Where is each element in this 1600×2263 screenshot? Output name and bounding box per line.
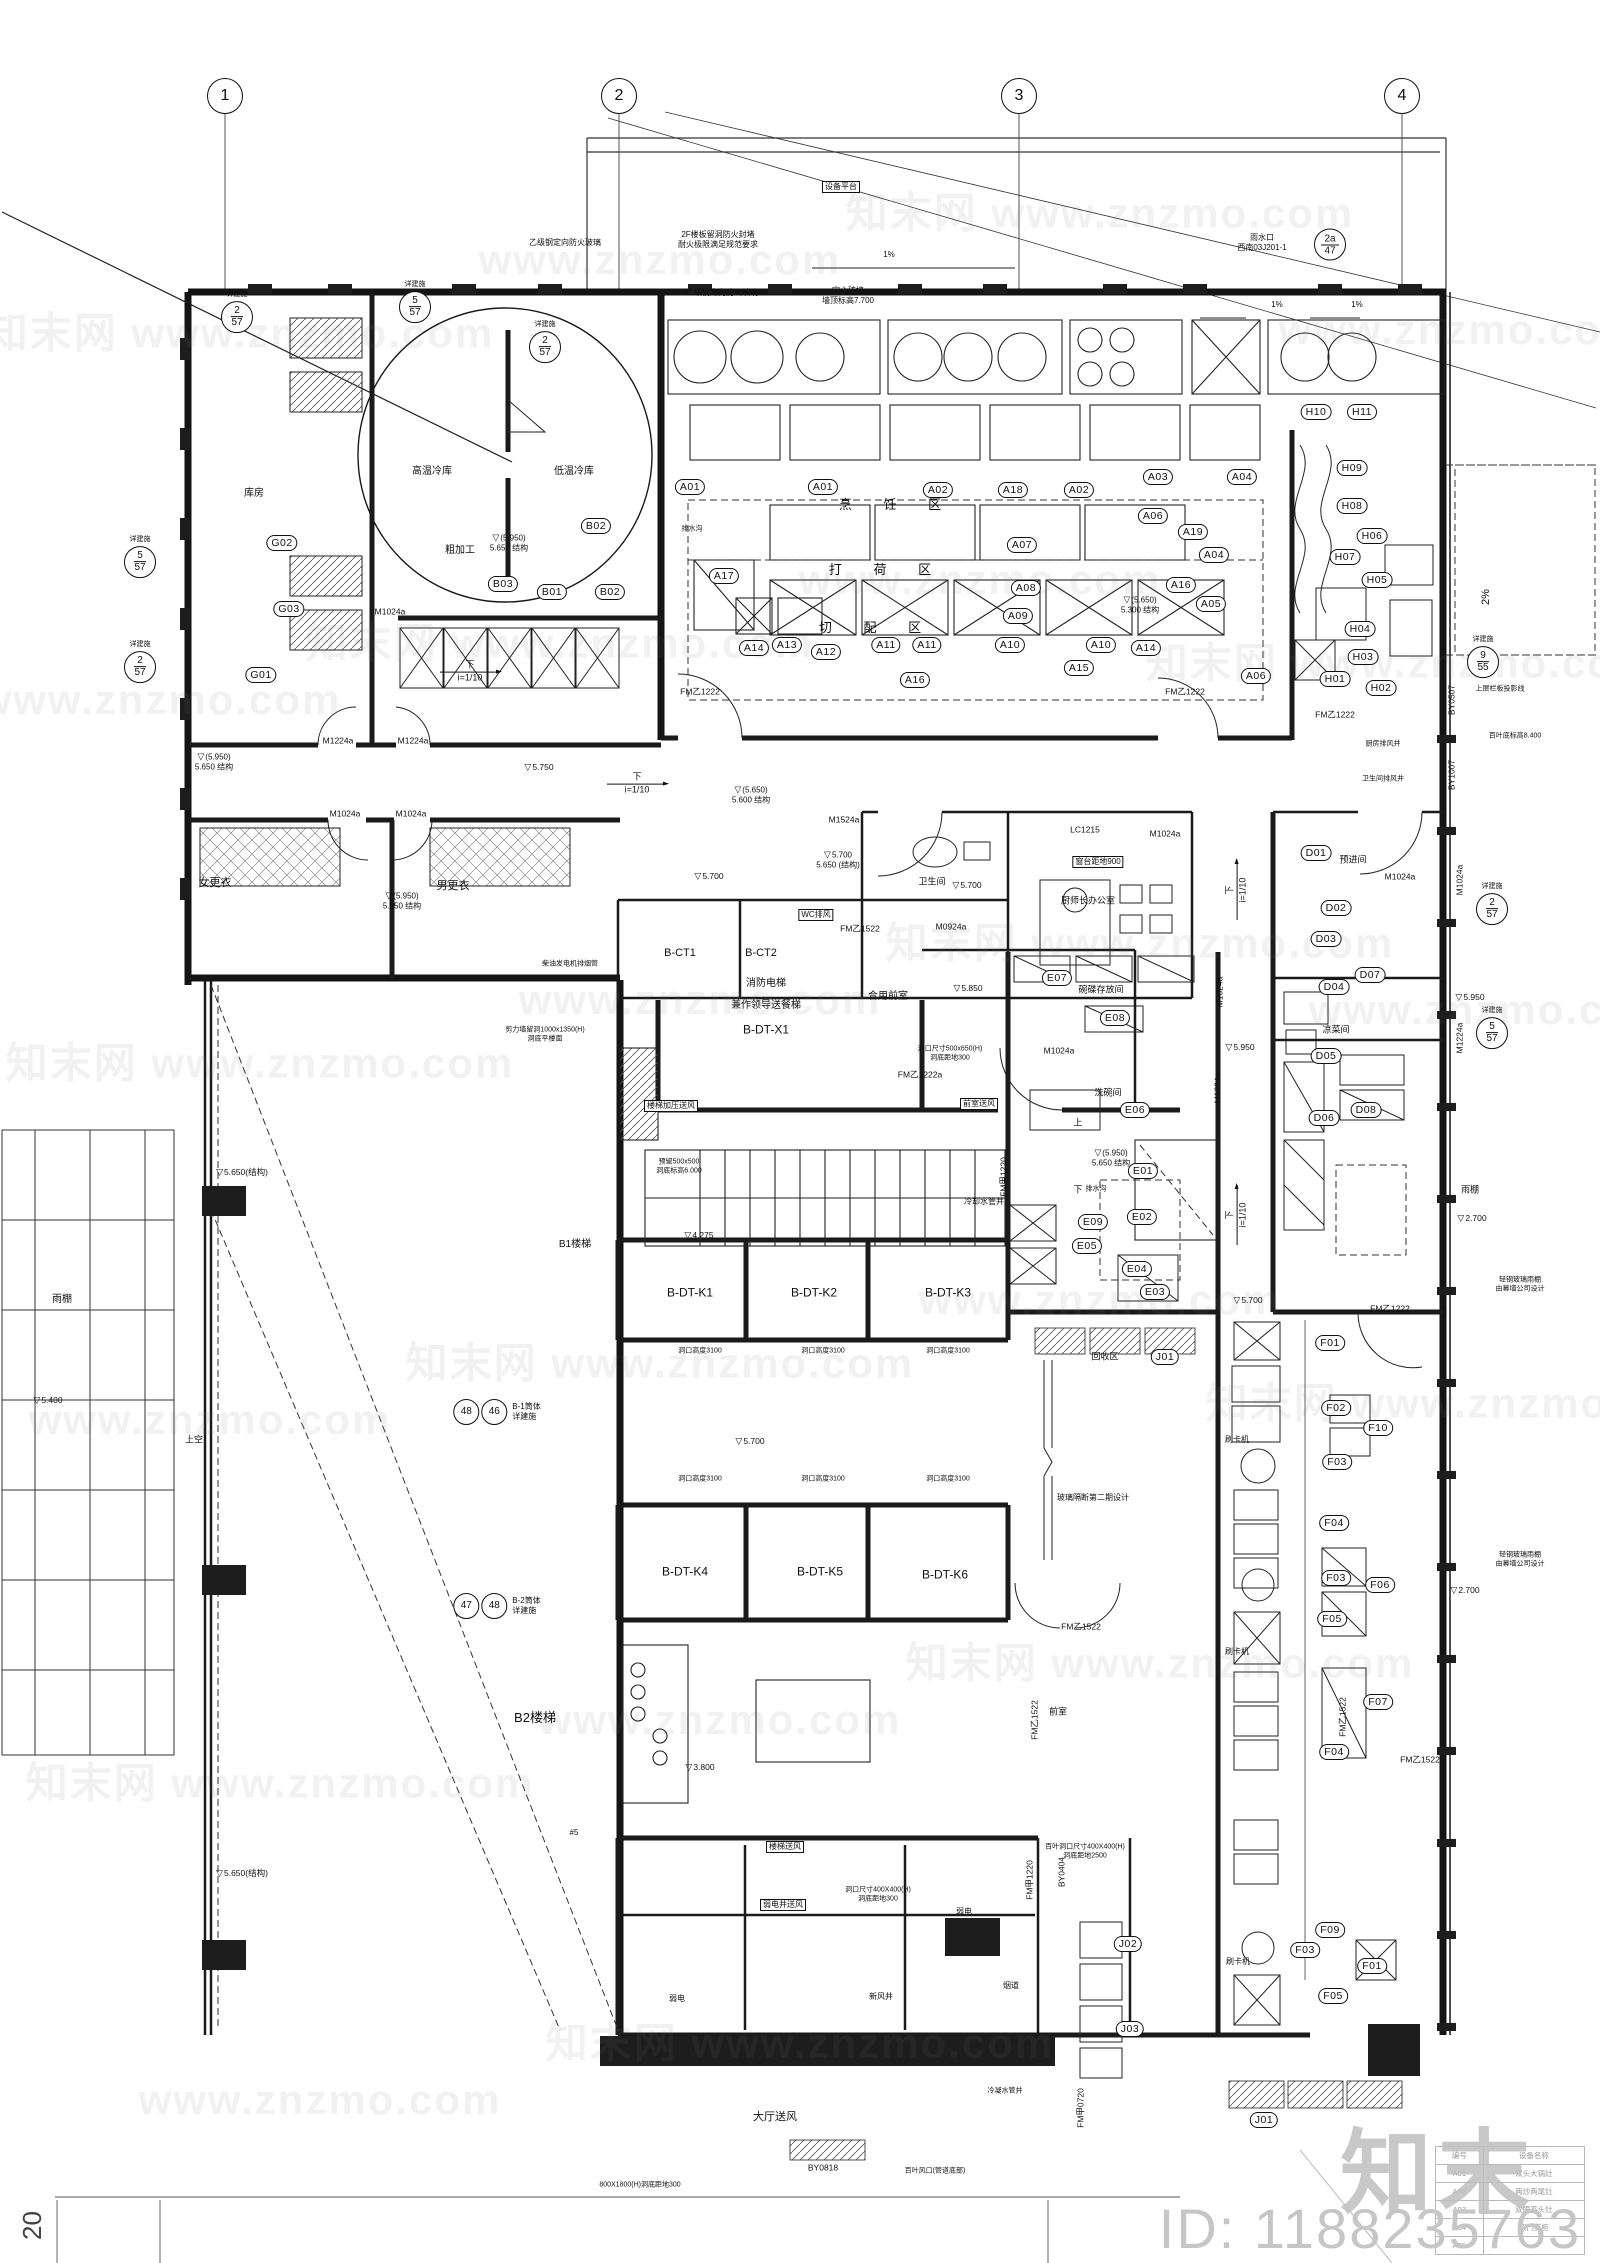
boxed-note: 弱电井送风 <box>760 1899 806 1911</box>
equipment-tag: F02 <box>1321 1400 1351 1416</box>
equipment-tag: A09 <box>1003 608 1033 624</box>
room-label: 女更衣 <box>199 877 232 891</box>
grid-axis-bubble: 1 <box>207 78 243 114</box>
ramp-slope-label: 下 i=1/10 <box>1226 860 1249 920</box>
room-label: 厨师长办公室 <box>1061 895 1115 906</box>
equipment-tag: H01 <box>1320 671 1351 687</box>
equipment-tag: F10 <box>1363 1420 1393 1436</box>
equipment-tag: E02 <box>1127 1209 1157 1225</box>
detail-ref-bubble: 详建施 257 <box>221 291 253 333</box>
annotation-note: 洞口尺寸500x650(H) 洞底距地300 <box>918 1045 983 1063</box>
room-label: B-CT2 <box>745 947 777 961</box>
door-code: BY0507 <box>1447 685 1458 715</box>
annotation-note: 预留500x500 洞底标高6.000 <box>656 1158 702 1176</box>
equipment-tag: B03 <box>488 576 518 592</box>
room-label: B-DT-X1 <box>743 1023 789 1038</box>
room-label: 烟道 <box>1003 1981 1019 1991</box>
room-label: 冷凝水管井 <box>988 2088 1023 2097</box>
door-code: FM乙1222 <box>1370 1304 1410 1315</box>
detail-ref-bubble: 详建施 955 <box>1467 636 1499 678</box>
level-mark: ▽5.700 <box>1233 1284 1262 1306</box>
equipment-tag: H05 <box>1362 572 1393 588</box>
level-mark: ▽5.950 <box>1225 1031 1254 1053</box>
grid-axis-bubble: 2 <box>601 78 637 114</box>
equipment-tag: E04 <box>1122 1261 1152 1277</box>
level-triangle-icon: ▽ <box>735 1436 742 1446</box>
boxed-note: 窗台距地900 <box>1072 856 1123 868</box>
boxed-note: 前室送风 <box>960 1098 998 1110</box>
level-mark: ▽5.950 <box>1455 981 1484 1003</box>
room-label: B-DT-K2 <box>791 1286 837 1301</box>
equipment-tag: G03 <box>273 601 304 617</box>
annotation-note: 1% <box>1271 300 1283 310</box>
grid-axis-bubble: 3 <box>1001 78 1037 114</box>
room-label: 大厅送风 <box>753 2111 797 2125</box>
zone-label: 切 配 区 <box>805 620 935 636</box>
annotation-note: 上层栏板投影线 <box>1476 686 1525 695</box>
equipment-tag: A03 <box>1143 469 1173 485</box>
boxed-note: 楼梯送风 <box>766 1841 804 1853</box>
door-code: LC1215 <box>1070 825 1100 836</box>
equipment-tag: A02 <box>1064 482 1094 498</box>
annotation-note: 洞口高度3100 <box>926 1348 970 1357</box>
equipment-tag: A14 <box>1131 640 1161 656</box>
equipment-tag: D03 <box>1311 931 1342 947</box>
detail-ref-bubble: 详建施 257 <box>124 641 156 683</box>
room-label: 兼作领导送餐梯 <box>731 1000 801 1013</box>
room-label: B-DT-K5 <box>797 1565 843 1580</box>
room-label: B-DT-K6 <box>922 1568 968 1583</box>
door-code: M1024a <box>396 809 427 820</box>
equipment-tag: H06 <box>1357 528 1388 544</box>
grid-axis-bubble: 4 <box>1384 78 1420 114</box>
equipment-tag: A07 <box>1007 537 1037 553</box>
ramp-slope-label: 下 i=1/10 <box>607 773 667 796</box>
ramp-arrow-icon <box>1237 1185 1238 1245</box>
annotation-note: 2F楼板留洞防火封堵 耐火极限满足规范要求 <box>678 230 758 250</box>
annotation-note: 百叶洞口尺寸400X400(H) 洞底距地2500 <box>1045 1843 1125 1861</box>
level-triangle-icon: ▽ <box>1233 1295 1240 1305</box>
watermark-text: www.znzmo.com <box>519 976 882 1024</box>
equipment-tag: A17 <box>709 568 739 584</box>
level-mark: ▽(5.950) 5.650 结构 <box>383 880 421 911</box>
equipment-tag: A06 <box>1138 508 1168 524</box>
equipment-tag: A01 <box>808 479 838 495</box>
equipment-tag: F07 <box>1363 1694 1393 1710</box>
detail-ref-bubble: 详建施 557 <box>399 281 431 323</box>
equipment-tag: B02 <box>595 584 625 600</box>
level-triangle-icon: ▽ <box>216 1868 223 1878</box>
room-label: 上 <box>1073 1117 1082 1128</box>
door-code: FM乙1522 <box>1400 1755 1440 1766</box>
equipment-tag: E01 <box>1128 1163 1158 1179</box>
equipment-tag: A18 <box>998 482 1028 498</box>
watermark-text: www.znzmo.com <box>539 1696 902 1744</box>
level-triangle-icon: ▽ <box>492 532 499 542</box>
equipment-tag: F01 <box>1357 1958 1387 1974</box>
equipment-tag: H02 <box>1366 680 1397 696</box>
ramp-arrow-icon <box>607 784 667 785</box>
equipment-tag: G02 <box>266 535 297 551</box>
level-mark: ▽2.700 <box>1450 1574 1479 1596</box>
detail-ref-bubble: 详建施 257 <box>1476 883 1508 925</box>
watermark-text: 知末网 www.znzmo.com <box>1206 1370 1600 1431</box>
asset-id: ID: 1188235763 <box>1140 2196 1600 2261</box>
watermark-text: www.znzmo.com <box>139 2076 502 2124</box>
ramp-arrow-icon <box>440 672 500 673</box>
equipment-tag: D06 <box>1309 1110 1340 1126</box>
level-mark: ▽(5.650) 5.600 结构 <box>732 774 770 805</box>
door-code: M1024a <box>1455 865 1466 896</box>
equipment-tag: E07 <box>1042 970 1072 986</box>
room-label: 洗碗间 <box>1094 1087 1121 1098</box>
ramp-arrow-icon <box>1237 860 1238 920</box>
door-code: M1224a <box>1213 1073 1224 1104</box>
door-code: M1024a <box>375 607 406 618</box>
room-label: 消防电梯 <box>746 978 786 991</box>
room-label: 卫生间 <box>918 876 945 887</box>
door-code: M0924a <box>936 922 967 933</box>
equipment-tag: A10 <box>1086 637 1116 653</box>
equipment-tag: A08 <box>1011 580 1041 596</box>
equipment-tag: B01 <box>537 584 567 600</box>
equipment-tag: H11 <box>1347 404 1377 420</box>
equipment-tag: H09 <box>1337 460 1368 476</box>
room-label: 弱电 <box>956 1907 972 1917</box>
equipment-tag: F03 <box>1321 1570 1351 1586</box>
annotation-note: 空心砖墙 墙顶标高7.700 <box>822 286 874 306</box>
level-triangle-icon: ▽ <box>694 871 701 881</box>
level-triangle-icon: ▽ <box>1450 1585 1457 1595</box>
watermark-text: 知末网 www.znzmo.com <box>546 2010 1054 2071</box>
equipment-tag: D04 <box>1319 979 1350 995</box>
door-code: M1024a <box>1150 829 1181 840</box>
door-code: FM乙1522 <box>1338 1697 1349 1737</box>
ramp-slope-label: 下 i=1/10 <box>1226 1185 1249 1245</box>
room-label: B-CT1 <box>664 947 696 961</box>
level-triangle-icon: ▽ <box>685 1762 692 1772</box>
room-label: 新风井 <box>869 1992 893 2002</box>
equipment-tag: F04 <box>1319 1744 1349 1760</box>
annotation-note: 乙级钢定向防火玻璃 <box>529 238 601 248</box>
annotation-note: 轻钢玻璃雨棚 由幕墙公司设计 <box>1496 1551 1545 1569</box>
level-mark: ▽(5.950) 5.650 结构 <box>490 522 528 553</box>
equipment-tag: F03 <box>1290 1942 1320 1958</box>
level-mark: ▽(5.650) 5.300 结构 <box>1121 584 1159 615</box>
boxed-note: 楼梯加压送风 <box>644 1100 698 1112</box>
annotation-note: 百叶风口(管道底部) <box>905 2168 966 2177</box>
equipment-tag: F03 <box>1322 1454 1352 1470</box>
level-triangle-icon: ▽ <box>385 890 392 900</box>
equipment-tag: A04 <box>1227 469 1257 485</box>
room-label: 库房 <box>244 488 264 501</box>
door-code: M1024a <box>1215 977 1226 1008</box>
room-label: B1楼梯 <box>559 1239 591 1252</box>
equipment-tag: A14 <box>739 640 769 656</box>
equipment-tag: J02 <box>1114 1936 1142 1952</box>
sheet-number: 20 <box>17 2211 48 2240</box>
door-code: M1524a <box>829 815 860 826</box>
watermark-text: 知末网 www.znzmo.com <box>26 1750 534 1811</box>
annotation-note: 百叶底标高8.400 <box>1489 733 1542 742</box>
equipment-tag: J03 <box>1116 2021 1144 2037</box>
equipment-tag: E09 <box>1078 1214 1108 1230</box>
equipment-tag: F01 <box>1315 1335 1345 1351</box>
door-code: FM乙1222 <box>1165 687 1205 698</box>
room-label: 前室 <box>1049 1706 1067 1717</box>
door-code: FM乙1222 <box>1315 710 1355 721</box>
detail-ref-bubble: 详建施 557 <box>124 536 156 578</box>
equipment-tag: H04 <box>1345 621 1376 637</box>
equipment-tag: H08 <box>1337 498 1368 514</box>
watermark-text: 知末网 www.znzmo.com <box>406 1330 914 1391</box>
annotation-note: 洞口高度3100 <box>926 1476 970 1485</box>
door-code: FM乙1522 <box>1030 1700 1041 1740</box>
door-code: BY0404 <box>1057 1857 1068 1887</box>
level-mark: ▽5.700 <box>735 1425 764 1447</box>
annotation-note: 800X1800(H)洞底距地300 <box>599 2182 680 2191</box>
equipment-tag: A05 <box>1196 596 1226 612</box>
equipment-tag: H10 <box>1301 404 1332 420</box>
detail-ref-bubble: 详建施 257 <box>529 321 561 363</box>
room-label: B-DT-K3 <box>925 1286 971 1301</box>
shaft-ref: 4748 B-2筒体 详建施 <box>453 1593 540 1619</box>
level-triangle-icon: ▽ <box>1225 1042 1232 1052</box>
level-mark: ▽5.650(结构) <box>216 1156 268 1178</box>
room-label: B-DT-K1 <box>667 1286 713 1301</box>
annotation-note: 2% <box>1480 589 1494 605</box>
equipment-tag: A10 <box>995 637 1025 653</box>
equipment-tag: B02 <box>581 518 611 534</box>
level-triangle-icon: ▽ <box>197 751 204 761</box>
equipment-tag: H03 <box>1348 649 1379 665</box>
annotation-note: 玻璃隔断第二期设计 <box>1057 1493 1129 1503</box>
level-mark: ▽5.750 <box>524 751 553 773</box>
level-triangle-icon: ▽ <box>953 983 960 993</box>
equipment-tag: A19 <box>1178 524 1208 540</box>
equipment-tag: D01 <box>1301 845 1332 861</box>
room-label: 雨棚 <box>52 1294 72 1307</box>
equipment-tag: J01 <box>1151 1349 1179 1365</box>
level-mark: ▽5.850 <box>953 972 982 994</box>
door-code: FM甲1220 <box>999 1157 1010 1197</box>
equipment-tag: F09 <box>1315 1922 1345 1938</box>
equipment-tag: F06 <box>1365 1577 1395 1593</box>
door-code: M1224a <box>398 736 429 747</box>
level-triangle-icon: ▽ <box>952 880 959 890</box>
door-code: FM甲1220 <box>1025 1860 1036 1900</box>
room-label: 刷卡机 <box>1225 1647 1249 1657</box>
annotation-note: 轻钢玻璃雨棚 由幕墙公司设计 <box>1496 1276 1545 1294</box>
equipment-tag: D02 <box>1321 900 1352 916</box>
equipment-tag: A06 <box>1241 668 1271 684</box>
door-code: BY0818 <box>808 2163 838 2174</box>
door-code: FM乙1222a <box>898 1070 942 1081</box>
annotation-note: 洞口高度3100 <box>678 1476 722 1485</box>
level-mark: ▽5.400 <box>33 1384 62 1406</box>
room-label: 上空 <box>185 1434 203 1445</box>
level-mark: ▽(5.950) 5.650 结构 <box>195 741 233 772</box>
annotation-note: 1% <box>883 250 895 260</box>
level-triangle-icon: ▽ <box>524 762 531 772</box>
level-mark: ▽5.700 5.650 (结构) <box>816 839 860 870</box>
level-mark: ▽(5.950) 5.650 结构 <box>1092 1137 1130 1168</box>
door-code: FM甲0720 <box>1076 2088 1087 2128</box>
door-code: M1224a <box>323 736 354 747</box>
door-code: BY1007 <box>1447 760 1458 790</box>
room-label: #5 <box>570 1828 579 1838</box>
equipment-tag: F04 <box>1319 1515 1349 1531</box>
annotation-note: 乙级钢定向防火玻璃 <box>686 288 758 298</box>
equipment-tag: G01 <box>245 667 276 683</box>
level-triangle-icon: ▽ <box>1455 992 1462 1002</box>
annotation-note: 排水沟 <box>682 526 703 535</box>
equipment-tag: A01 <box>675 479 705 495</box>
level-triangle-icon: ▽ <box>216 1167 223 1177</box>
equipment-tag: D07 <box>1355 967 1386 983</box>
annotation-note: 雨水口 西南03J201-1 <box>1237 233 1286 253</box>
room-label: 低温冷库 <box>554 466 594 479</box>
room-label: 下 <box>1073 1184 1082 1195</box>
level-mark: ▽5.700 <box>952 869 981 891</box>
watermark-text: www.znzmo.com <box>0 676 341 724</box>
door-code: M1024a <box>1044 1046 1075 1057</box>
annotation-note: 剪力墙留洞1000x1350(H) 洞底平楼面 <box>505 1026 584 1044</box>
equipment-tag: E05 <box>1072 1238 1102 1254</box>
equipment-tag: H07 <box>1330 549 1361 565</box>
room-label: 高温冷库 <box>412 466 452 479</box>
watermark-text: 知末网 www.znzmo.com <box>846 180 1354 241</box>
equipment-tag: J01 <box>1250 2112 1278 2128</box>
zone-label: 打 荷 区 <box>815 562 945 578</box>
annotation-note: 排水沟 <box>1086 1186 1107 1195</box>
watermark-text: 知末网 www.znzmo.com <box>906 1630 1414 1691</box>
equipment-tag: A02 <box>923 482 953 498</box>
annotation-note: 柴油发电机排烟管 <box>542 961 598 970</box>
level-mark: ▽5.700 <box>694 860 723 882</box>
equipment-tag: A13 <box>772 637 802 653</box>
annotation-note: 洞口高度3100 <box>801 1348 845 1357</box>
equipment-tag: F05 <box>1317 1611 1347 1627</box>
door-code: M1024a <box>330 809 361 820</box>
equipment-tag: A11 <box>912 637 941 653</box>
equipment-tag: A16 <box>1166 577 1196 593</box>
equipment-tag: E08 <box>1100 1010 1130 1026</box>
annotation-note: 卫生间排风井 <box>1362 776 1404 785</box>
level-triangle-icon: ▽ <box>1094 1147 1101 1157</box>
door-code: FM乙1222 <box>680 687 720 698</box>
equipment-tag: E03 <box>1140 1284 1170 1300</box>
boxed-note: 设备平台 <box>822 181 860 193</box>
boxed-note: WC排风 <box>798 909 833 921</box>
room-label: 冷却水管井 <box>964 1197 1004 1207</box>
zone-label: 烹 饪 区 <box>825 497 955 513</box>
ramp-slope-label: 下 i=1/10 <box>440 661 500 684</box>
room-label: 粗加工 <box>445 545 475 558</box>
annotation-note: 1% <box>1351 300 1363 310</box>
room-label: 凉菜间 <box>1322 1024 1349 1035</box>
room-label: B-DT-K4 <box>662 1565 708 1580</box>
equipment-tag: A04 <box>1199 547 1229 563</box>
door-code: FM乙1522 <box>840 924 880 935</box>
detail-ref-bubble: 2a47 <box>1314 228 1346 261</box>
equipment-tag: A16 <box>900 672 930 688</box>
door-code: M1024a <box>1385 872 1416 883</box>
door-code: M1224a <box>1455 1023 1466 1054</box>
equipment-tag: E06 <box>1120 1102 1150 1118</box>
room-label: 刷卡机 <box>1226 1957 1250 1967</box>
watermark-text: www.znzmo.com <box>1279 306 1600 354</box>
level-triangle-icon: ▽ <box>734 784 741 794</box>
annotation-note: 厨房排风井 <box>1366 741 1401 750</box>
level-mark: ▽4.275 <box>684 1219 713 1241</box>
watermark-text: 知末网 www.znzmo.com <box>306 610 814 671</box>
equipment-tag: A11 <box>871 637 900 653</box>
room-label: B2楼梯 <box>514 1710 556 1726</box>
level-triangle-icon: ▽ <box>684 1230 691 1240</box>
cad-floor-plan-sheet: 知末网 www.znzmo.comwww.znzmo.com知末网 www.zn… <box>0 0 1600 2263</box>
level-triangle-icon: ▽ <box>824 849 831 859</box>
equipment-tag: D05 <box>1311 1048 1342 1064</box>
level-triangle-icon: ▽ <box>1457 1213 1464 1223</box>
room-label: 刷卡机 <box>1225 1435 1249 1445</box>
level-triangle-icon: ▽ <box>1123 594 1130 604</box>
room-label: 碗碟存放间 <box>1078 984 1123 995</box>
door-code: FM乙1522 <box>1061 1622 1101 1633</box>
watermark-text: www.znzmo.com <box>919 1276 1282 1324</box>
level-triangle-icon: ▽ <box>33 1395 40 1405</box>
equipment-tag: A15 <box>1064 660 1094 676</box>
equipment-tag: A12 <box>811 644 841 660</box>
level-mark: ▽2.700 <box>1457 1202 1486 1224</box>
annotation-note: 洞口高度3100 <box>801 1476 845 1485</box>
detail-ref-bubble: 详建施 557 <box>1476 1007 1508 1049</box>
room-label: 男更衣 <box>437 880 470 894</box>
level-mark: ▽3.800 <box>685 1751 714 1773</box>
shaft-ref: 4846 B-1筒体 详建施 <box>453 1399 540 1425</box>
room-label: 弱电 <box>669 1994 685 2004</box>
annotation-note: 洞口高度3100 <box>678 1348 722 1357</box>
equipment-tag: D08 <box>1351 1102 1382 1118</box>
room-label: 预进间 <box>1339 854 1366 865</box>
equipment-tag: F05 <box>1318 1988 1348 2004</box>
watermark-text: 知末网 www.znzmo.com <box>6 1030 514 1091</box>
room-label: 雨棚 <box>1461 1184 1479 1195</box>
annotation-note: 洞口尺寸400X400(H) 洞底距地300 <box>845 1886 911 1904</box>
room-label: 回收区 <box>1091 1351 1118 1362</box>
room-label: 合用前室 <box>868 991 908 1004</box>
watermark-text: www.znzmo.com <box>29 1396 392 1444</box>
level-mark: ▽5.650(结构) <box>216 1857 268 1879</box>
